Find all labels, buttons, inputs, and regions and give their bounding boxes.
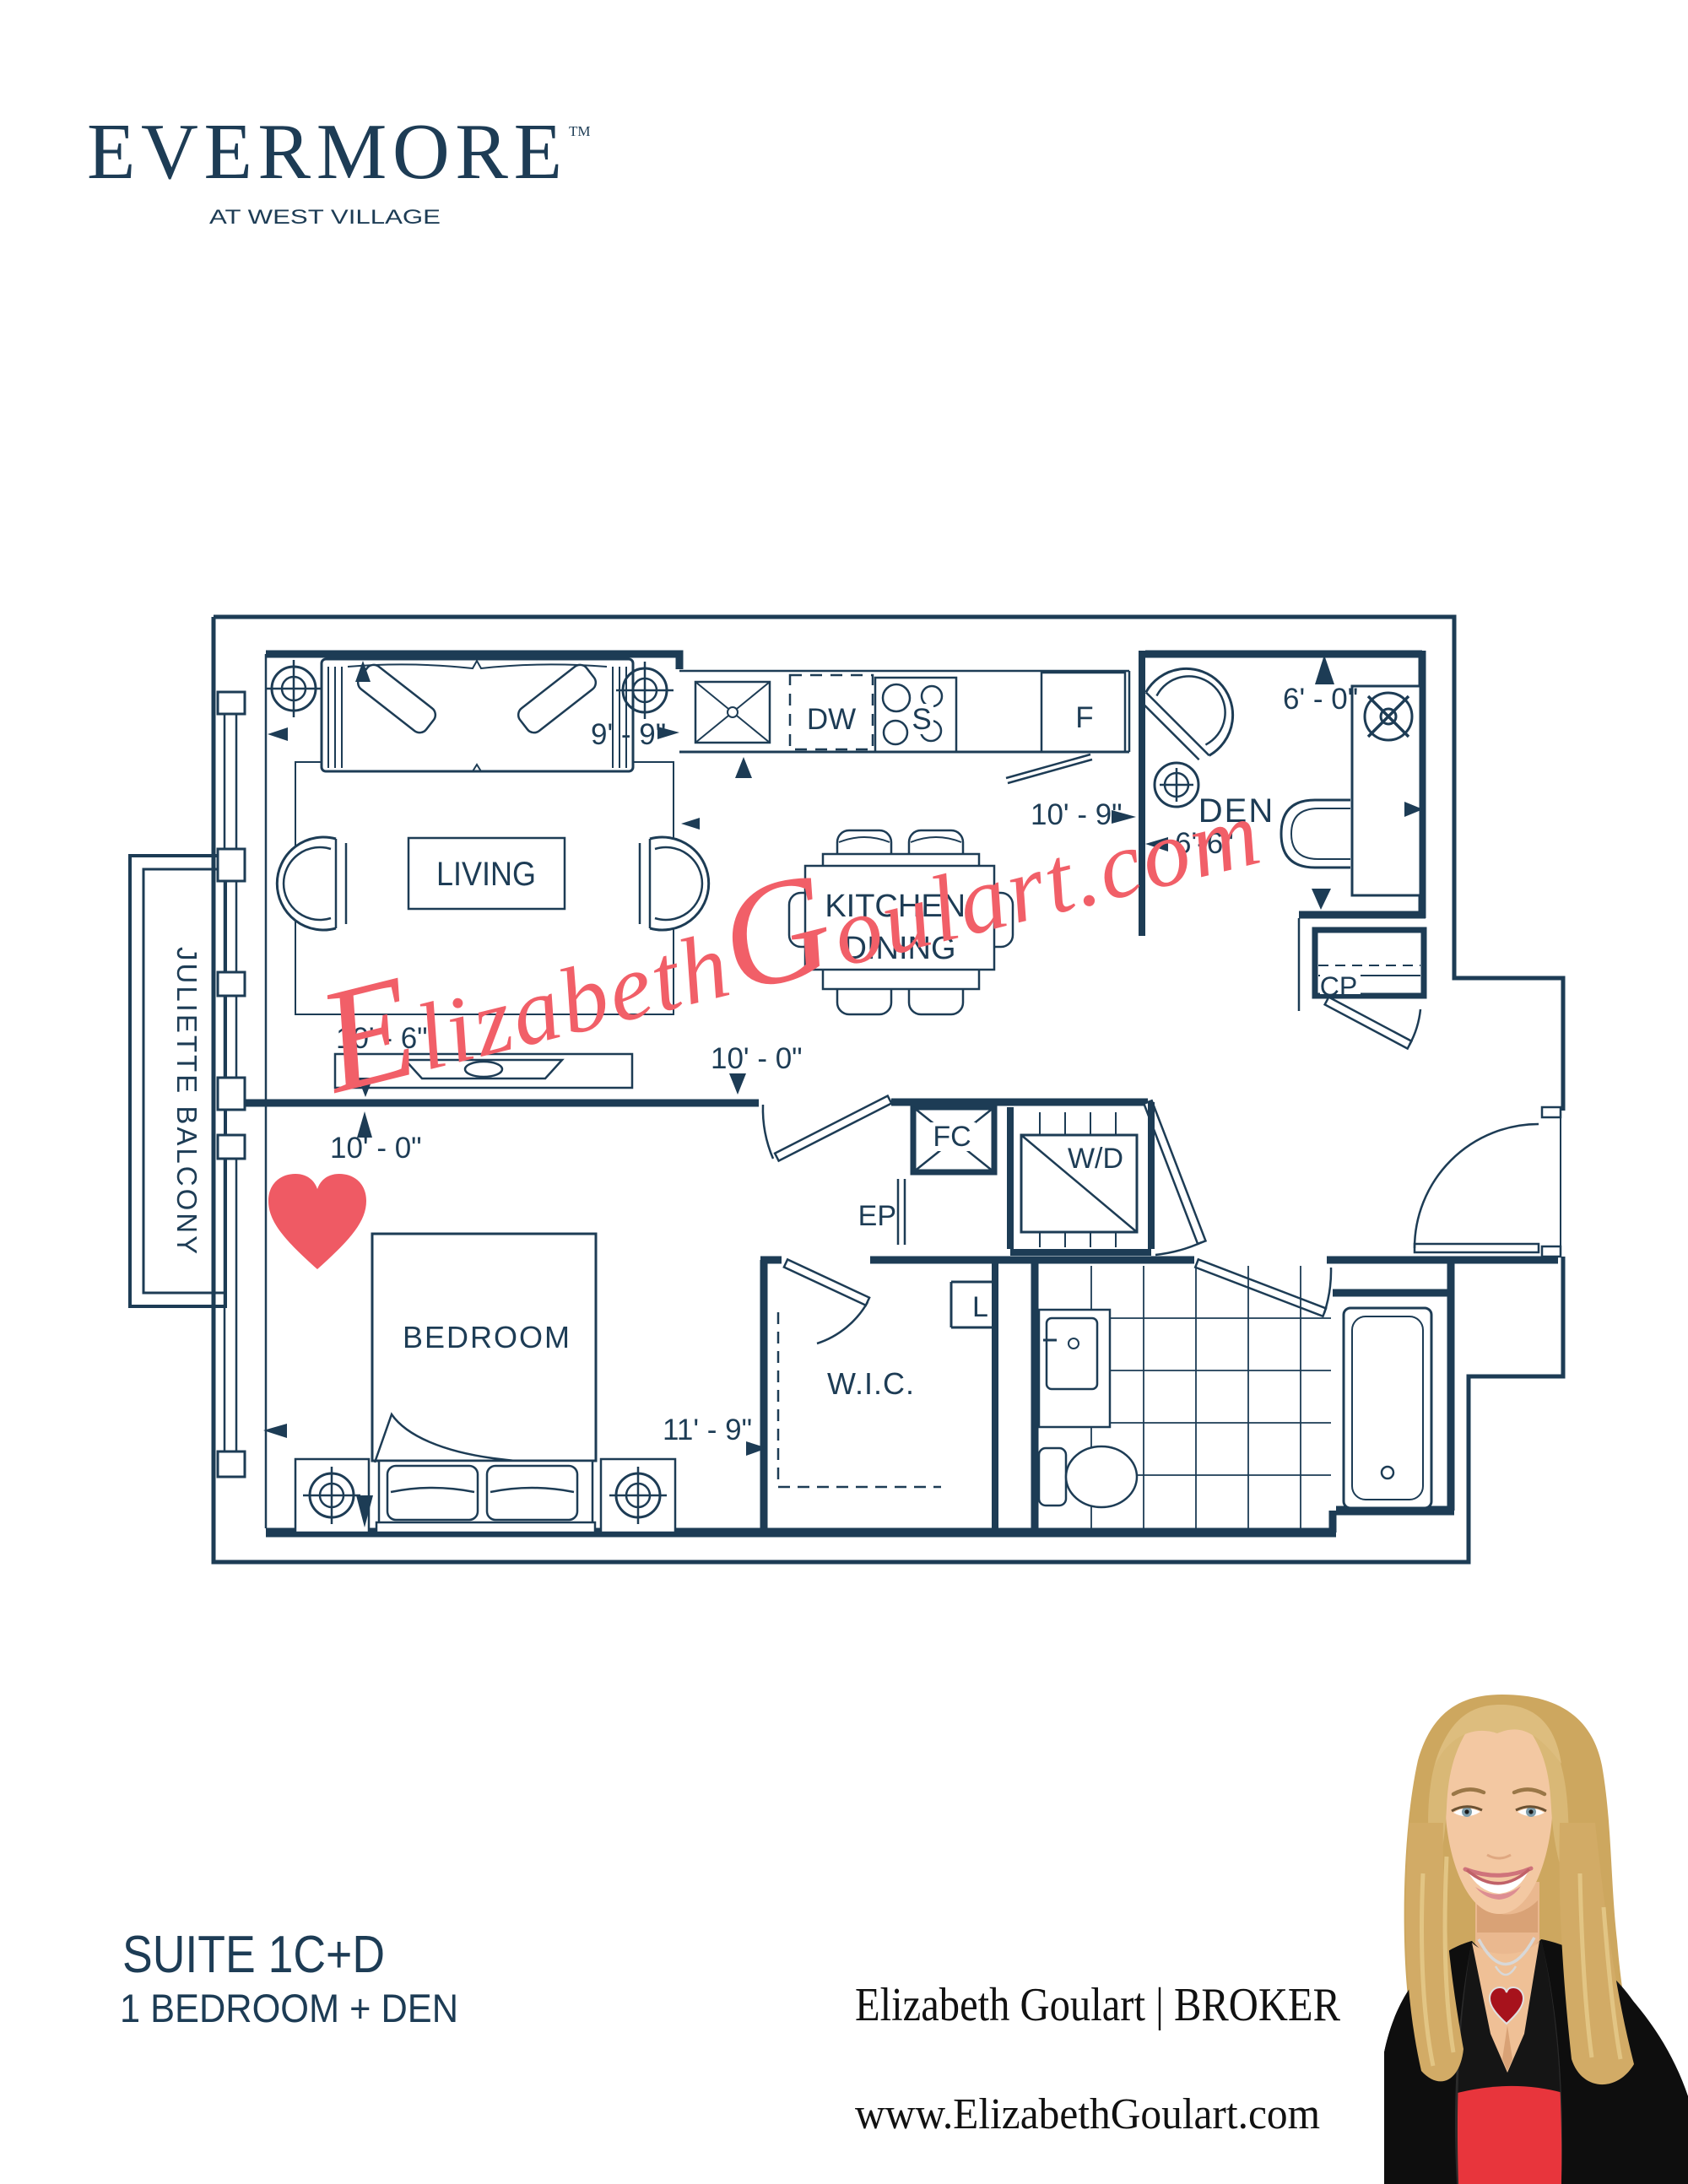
svg-text:BEDROOM: BEDROOM: [403, 1320, 571, 1354]
svg-text:9' - 9": 9' - 9": [591, 718, 666, 751]
svg-text:W/D: W/D: [1068, 1143, 1123, 1175]
svg-text:EVERMORE: EVERMORE: [87, 108, 562, 196]
svg-text:SUITE 1C+D: SUITE 1C+D: [122, 1926, 385, 1984]
svg-text:1 BEDROOM + DEN: 1 BEDROOM + DEN: [120, 1986, 458, 2030]
svg-text:10' - 0": 10' - 0": [711, 1042, 803, 1075]
svg-text:EP: EP: [858, 1200, 896, 1232]
svg-text:11' - 9": 11' - 9": [663, 1414, 752, 1446]
svg-text:LIVING: LIVING: [436, 856, 536, 893]
svg-text:TM: TM: [569, 123, 591, 139]
svg-text:S: S: [912, 703, 931, 736]
svg-text:10' - 0": 10' - 0": [330, 1132, 422, 1165]
svg-text:AT WEST VILLAGE: AT WEST VILLAGE: [209, 206, 441, 229]
svg-text:DW: DW: [807, 703, 856, 736]
svg-text:JULIETTE BALCONY: JULIETTE BALCONY: [171, 947, 203, 1257]
svg-text:CP: CP: [1320, 971, 1357, 1002]
svg-text:6' - 0": 6' - 0": [1283, 683, 1358, 716]
svg-text:Elizabeth Goulart | BROKER: Elizabeth Goulart | BROKER: [855, 1979, 1341, 2031]
svg-text:W.I.C.: W.I.C.: [827, 1366, 915, 1401]
svg-text:www.ElizabethGoulart.com: www.ElizabethGoulart.com: [855, 2090, 1320, 2138]
svg-text:FC: FC: [933, 1121, 971, 1153]
svg-text:L: L: [972, 1291, 988, 1323]
svg-text:F: F: [1075, 701, 1093, 734]
